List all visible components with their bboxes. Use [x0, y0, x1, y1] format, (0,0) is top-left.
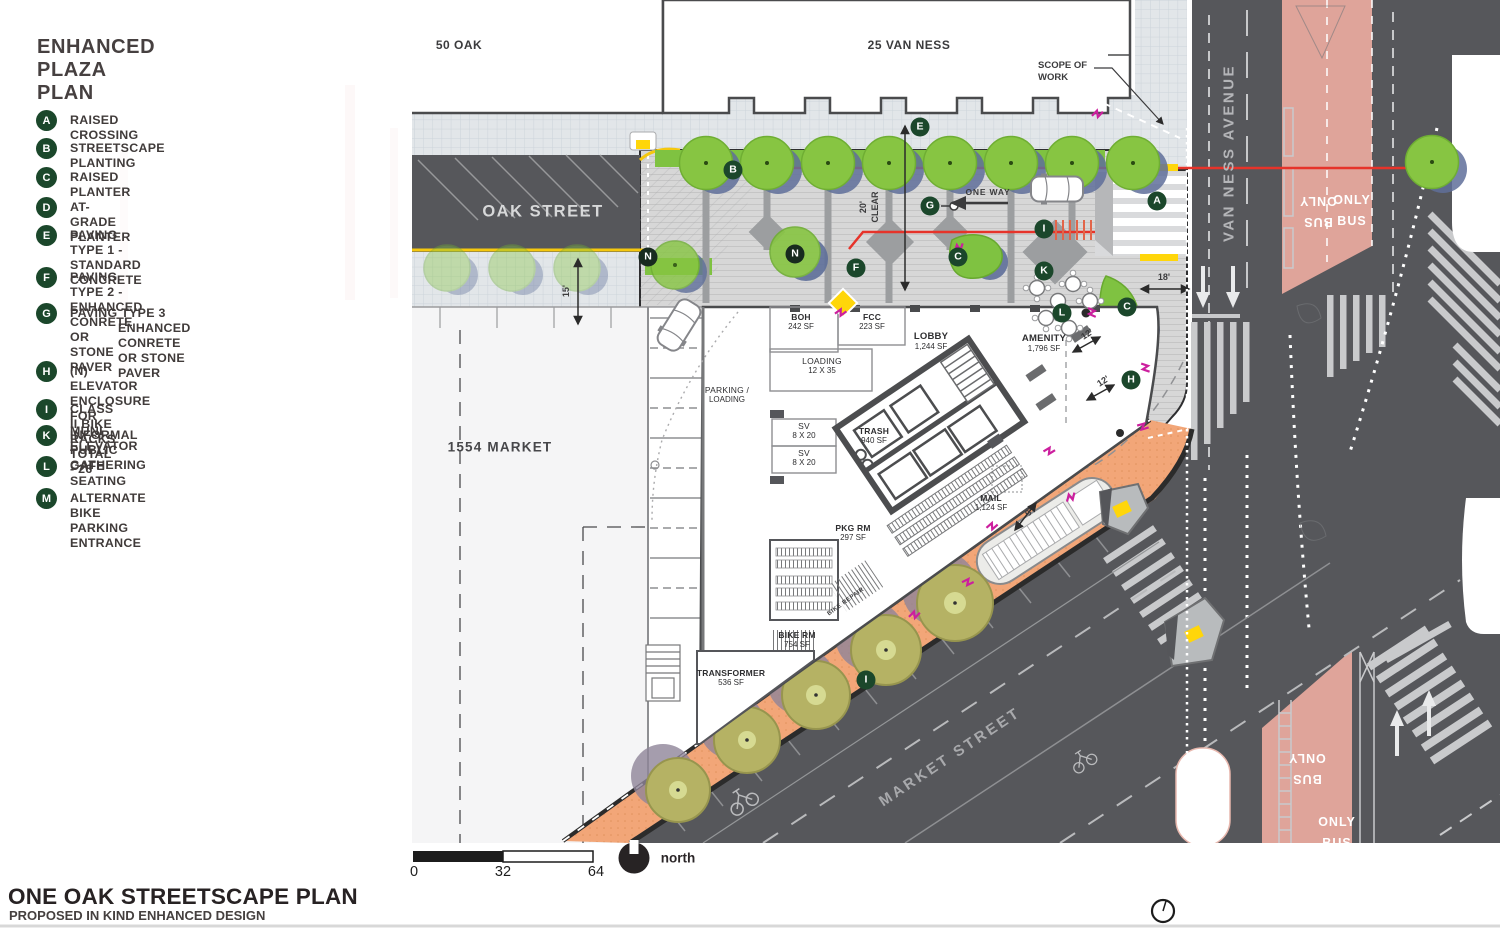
page-bottom-rule	[0, 925, 1500, 928]
legend-item-l: L CAFE SEATING	[36, 456, 126, 489]
building-25-van-ness	[663, 0, 1130, 113]
bus-only-marking-south-right: ONLYBUS	[1318, 812, 1356, 854]
scope-of-work-label: SCOPE OF WORK	[1038, 60, 1087, 83]
legend-key-f: F	[36, 267, 57, 288]
marker-f: F	[847, 259, 866, 278]
plan-drawing	[0, 0, 1500, 928]
legend-title: ENHANCED PLAZA PLAN	[37, 36, 155, 105]
stair-sw	[646, 645, 680, 701]
room-label-bike-rm: BIKE RM754 SF	[778, 630, 815, 650]
marker-a: A	[1148, 192, 1167, 211]
dim-18: 18'	[1158, 272, 1170, 282]
room-label-loading: LOADING12 X 35	[802, 356, 842, 376]
scale-label-32: 32	[495, 864, 511, 880]
north-label: north	[661, 851, 696, 866]
red-tick-hatch	[1056, 220, 1098, 240]
room-label-transformer: TRANSFORMER536 SF	[697, 668, 765, 688]
marker-l: L	[1053, 304, 1072, 323]
marker-h: H	[1122, 371, 1141, 390]
parked-car	[1031, 174, 1083, 205]
legend-key-i: I	[36, 399, 57, 420]
bus-only-marking-north-left: BUSONLY	[1299, 190, 1337, 232]
marker-c-2: C	[1118, 298, 1137, 317]
legend-key-g: G	[36, 303, 57, 324]
legend-key-a: A	[36, 110, 57, 131]
room-label-sv-2: SV8 X 20	[792, 448, 815, 468]
legend-key-d: D	[36, 197, 57, 218]
room-label-boh: BOH242 SF	[788, 312, 814, 332]
street-label-van-ness: VAN NESS AVENUE	[1221, 64, 1238, 242]
marker-c-1: C	[949, 248, 968, 267]
legend-key-b: B	[36, 138, 57, 159]
marker-i-1: I	[1035, 220, 1054, 239]
marker-g: G	[921, 197, 940, 216]
room-label-trash: TRASH940 SF	[859, 426, 889, 446]
lot-label-1554-market: 1554 MARKET	[448, 440, 553, 455]
room-label-sv-1: SV8 X 20	[792, 421, 815, 441]
room-label-lobby: LOBBY1,244 SF	[914, 332, 948, 352]
room-label-mail: MAIL1,124 SF	[975, 493, 1007, 513]
scale-bar	[413, 851, 593, 862]
room-label-pkg-rm: PKG RM297 SF	[835, 523, 870, 543]
legend-key-c: C	[36, 167, 57, 188]
one-way-label: ONE WAY	[966, 187, 1011, 197]
legend-key-e: E	[36, 225, 57, 246]
scale-label-0: 0	[410, 864, 418, 880]
marker-n-1: N	[639, 248, 658, 267]
legend-item-m: M ALTERNATE BIKE PARKING ENTRANCE	[36, 488, 146, 551]
marker-n-2: N	[786, 245, 805, 264]
legend-key-m: M	[36, 488, 57, 509]
legend-key-l: L	[36, 456, 57, 477]
marker-k: K	[1035, 262, 1054, 281]
street-label-oak: OAK STREET	[482, 203, 603, 222]
legend-key-k: K	[36, 425, 57, 446]
streetscape-plan-page: ENHANCED PLAZA PLAN A RAISED CROSSING B …	[0, 0, 1500, 928]
dim-20-clear: 20' CLEAR	[857, 192, 881, 223]
room-label-amenity: AMENITY1,796 SF	[1022, 334, 1066, 354]
legend-key-h: H	[36, 361, 57, 382]
room-label-parking-loading: PARKING /LOADING	[705, 385, 749, 405]
marker-e: E	[911, 118, 930, 137]
dim-15: 15'	[561, 285, 571, 297]
sheet-subtitle: PROPOSED IN KIND ENHANCED DESIGN	[9, 908, 265, 923]
building-label-50-oak: 50 OAK	[436, 38, 482, 52]
bus-only-marking-south-left: BUSONLY	[1288, 747, 1326, 789]
bus-only-marking-north-right: ONLYBUS	[1333, 190, 1371, 232]
legend-item-c: C RAISED PLANTER	[36, 167, 131, 200]
building-label-25-van-ness: 25 VAN NESS	[868, 38, 951, 52]
marker-b: B	[724, 161, 743, 180]
sheet-title: ONE OAK STREETSCAPE PLAN	[8, 884, 358, 910]
marker-i-2: I	[857, 671, 876, 690]
building-50-oak	[412, 0, 663, 113]
scale-label-64: 64	[588, 864, 604, 880]
room-label-fcc: FCC223 SF	[859, 312, 885, 332]
